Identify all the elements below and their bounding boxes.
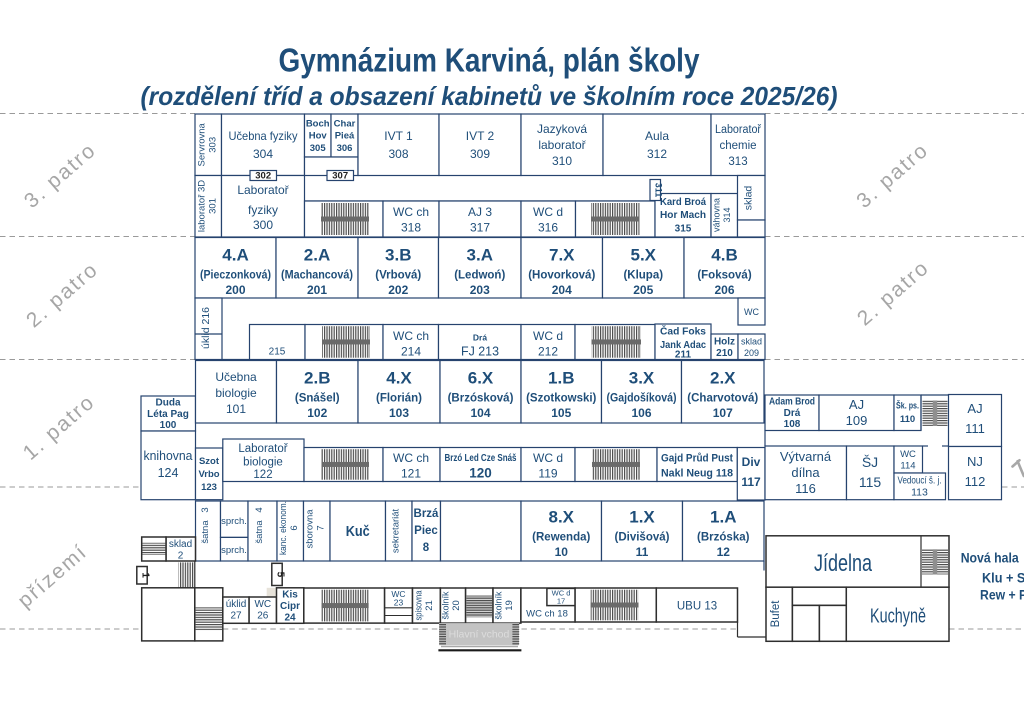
svg-text:WC ch: WC ch [393,451,429,465]
svg-text:chemie: chemie [719,140,756,152]
svg-text:103: 103 [389,406,409,420]
svg-text:Pieá: Pieá [335,131,355,142]
svg-text:sprch.: sprch. [221,516,247,527]
svg-text:2.B: 2.B [304,369,330,388]
svg-text:310: 310 [552,154,572,168]
svg-text:váhovna: váhovna [712,198,722,232]
svg-text:Vedoucí š. j.: Vedoucí š. j. [898,475,942,487]
svg-text:Hlavní vchod: Hlavní vchod [449,629,510,641]
svg-text:308: 308 [388,147,408,161]
svg-text:sklad: sklad [169,539,192,550]
svg-text:(Hovorková): (Hovorková) [528,270,595,282]
svg-text:Hov: Hov [309,131,328,142]
svg-text:113: 113 [911,487,928,499]
svg-text:209: 209 [744,348,759,358]
svg-text:IVT 1: IVT 1 [384,129,413,143]
svg-text:(Vrbová): (Vrbová) [375,270,421,282]
svg-text:WC d: WC d [533,329,563,343]
svg-text:2.A: 2.A [304,246,330,265]
svg-text:201: 201 [307,283,327,297]
svg-text:307: 307 [332,171,348,182]
svg-text:100: 100 [160,420,177,431]
svg-text:Szot: Szot [199,456,220,467]
svg-text:(Florián): (Florián) [376,393,422,405]
svg-text:313: 313 [728,156,747,168]
svg-text:(Pieczonková): (Pieczonková) [200,270,271,282]
svg-text:4.X: 4.X [386,369,412,388]
svg-text:123: 123 [201,482,217,493]
svg-text:212: 212 [538,345,558,359]
svg-text:17: 17 [557,597,565,606]
svg-text:Jídelna: Jídelna [814,550,872,577]
svg-text:301: 301 [208,198,219,214]
svg-text:316: 316 [538,221,558,235]
svg-text:Gajd Průd Pust: Gajd Průd Pust [661,453,733,465]
svg-text:Učebna fyziky: Učebna fyziky [229,129,298,143]
svg-text:200: 200 [225,283,245,297]
svg-text:AJ: AJ [849,397,864,412]
svg-text:UBU 13: UBU 13 [677,601,717,613]
svg-text:NJ: NJ [967,454,983,469]
svg-text:sborovna: sborovna [305,509,316,549]
svg-text:111: 111 [965,421,985,436]
svg-text:114: 114 [900,461,915,472]
svg-text:104: 104 [470,406,490,420]
svg-text:4.B: 4.B [711,246,737,265]
svg-text:204: 204 [552,283,572,297]
svg-text:Drá: Drá [473,333,487,343]
svg-text:Laboratoř: Laboratoř [238,443,288,455]
svg-text:školník: školník [494,591,505,619]
svg-text:3.X: 3.X [629,369,655,388]
svg-text:Nová hala: Nová hala [961,550,1019,566]
svg-text:Kuchyně: Kuchyně [870,606,926,628]
svg-text:biologie: biologie [215,386,257,400]
svg-text:(Brzósková): (Brzósková) [448,393,514,405]
svg-text:2: 2 [178,551,184,562]
svg-text:Adam Brod: Adam Brod [769,397,815,408]
svg-text:116: 116 [795,481,816,496]
svg-text:3.B: 3.B [385,246,411,265]
svg-text:Brzó Led Cze Snáš: Brzó Led Cze Snáš [445,453,517,464]
svg-text:Laboratoř: Laboratoř [715,124,762,136]
svg-text:8.X: 8.X [548,508,574,527]
svg-text:12: 12 [717,545,731,559]
svg-text:Duda: Duda [156,398,181,409]
svg-text:6.X: 6.X [468,369,494,388]
svg-text:Aula: Aula [645,129,669,143]
svg-text:303: 303 [208,137,219,153]
svg-text:FJ 213: FJ 213 [461,345,499,359]
svg-text:302: 302 [255,171,271,182]
svg-text:fyziky: fyziky [248,203,278,217]
svg-text:sekretariát: sekretariát [391,508,402,553]
svg-text:4.A: 4.A [222,246,248,265]
svg-text:202: 202 [388,283,408,297]
svg-text:23: 23 [394,598,404,608]
svg-text:laboratoř 3D: laboratoř 3D [197,180,208,232]
svg-text:Cipr: Cipr [280,601,300,612]
svg-text:Rew + Pe: Rew + Pe [980,587,1024,603]
svg-text:309: 309 [470,147,490,161]
svg-text:AJ: AJ [967,401,982,416]
svg-text:19: 19 [504,600,515,611]
svg-text:Hor Mach: Hor Mach [660,210,706,221]
svg-text:215: 215 [269,347,286,358]
svg-text:112: 112 [965,474,986,489]
svg-text:106: 106 [631,406,651,420]
svg-text:102: 102 [307,406,327,420]
svg-text:20: 20 [451,600,462,611]
svg-text:8: 8 [423,542,430,554]
svg-text:Jazyková: Jazyková [537,122,587,136]
svg-text:školník: školník [441,591,452,619]
svg-text:24: 24 [284,613,296,624]
svg-text:21: 21 [424,600,435,611]
svg-text:117: 117 [741,475,761,489]
svg-text:Bufet: Bufet [770,600,782,628]
svg-text:6: 6 [289,525,300,530]
svg-text:122: 122 [253,469,272,481]
svg-text:(Machancová): (Machancová) [281,270,353,282]
svg-text:121: 121 [401,467,421,481]
svg-text:(Rewenda): (Rewenda) [532,532,590,544]
svg-text:1.A: 1.A [710,508,736,527]
svg-text:105: 105 [551,406,571,420]
svg-text:spisovna: spisovna [414,590,425,621]
svg-text:(Brzóska): (Brzóska) [697,532,750,544]
svg-text:(Szotkowski): (Szotkowski) [526,393,596,405]
svg-text:WC ch 18: WC ch 18 [526,609,568,620]
svg-text:WC: WC [744,307,759,317]
svg-text:Nakl Neug 118: Nakl Neug 118 [661,468,733,480]
svg-text:318: 318 [401,221,421,235]
svg-text:Laboratoř: Laboratoř [237,183,289,197]
svg-text:124: 124 [158,466,179,480]
svg-text:WC: WC [900,449,916,460]
svg-text:304: 304 [253,147,273,161]
svg-text:300: 300 [253,218,273,232]
svg-text:26: 26 [257,611,269,622]
svg-text:WC: WC [254,599,271,610]
svg-text:laboratoř: laboratoř [538,138,586,152]
svg-text:206: 206 [714,283,734,297]
svg-text:(Ledwoń): (Ledwoń) [454,270,505,282]
svg-text:107: 107 [713,406,733,420]
svg-text:1: 1 [139,572,150,578]
svg-text:IVT 2: IVT 2 [466,129,495,143]
svg-text:120: 120 [469,466,492,481]
svg-text:WC d: WC d [533,451,563,465]
svg-text:dílna: dílna [791,465,820,480]
svg-text:203: 203 [470,283,490,297]
svg-text:Char: Char [334,119,356,130]
svg-text:(Snášel): (Snášel) [295,393,340,405]
svg-text:sklad: sklad [743,186,755,211]
svg-text:27: 27 [230,611,242,622]
svg-text:311: 311 [654,183,664,198]
svg-text:108: 108 [784,419,801,430]
svg-text:(Klupa): (Klupa) [623,270,663,282]
svg-text:úklid: úklid [226,599,247,610]
svg-text:Div: Div [742,455,761,469]
svg-text:Drá: Drá [784,408,801,419]
svg-text:šatna: šatna [200,520,211,544]
svg-text:Brzá: Brzá [414,508,440,520]
svg-text:(Divišová): (Divišová) [615,532,670,544]
svg-text:AJ 3: AJ 3 [468,205,492,219]
svg-text:Servrovna: Servrovna [197,122,208,166]
svg-text:Piec: Piec [414,525,438,537]
svg-text:WC d: WC d [533,205,563,219]
svg-text:WC ch: WC ch [393,329,429,343]
svg-text:7.X: 7.X [549,246,575,265]
svg-text:115: 115 [859,474,882,490]
svg-text:Kard Broá: Kard Broá [660,197,706,208]
svg-text:205: 205 [633,283,653,297]
svg-text:Vrbo: Vrbo [198,469,219,480]
svg-text:1.B: 1.B [548,369,574,388]
svg-text:Výtvarná: Výtvarná [780,449,832,464]
svg-text:ŠJ: ŠJ [862,454,878,470]
svg-text:sprch.: sprch. [221,545,247,556]
svg-text:7: 7 [316,525,327,530]
svg-text:Čad Foks: Čad Foks [660,325,706,338]
svg-text:4: 4 [254,507,265,512]
svg-text:11: 11 [636,545,649,559]
svg-text:Gymnázium Karviná, plán školy: Gymnázium Karviná, plán školy [279,42,701,79]
svg-text:knihovna: knihovna [144,449,193,463]
svg-text:(Gajdošíková): (Gajdošíková) [607,393,677,405]
svg-text:(Charvotová): (Charvotová) [687,393,758,405]
svg-text:306: 306 [337,143,353,154]
svg-text:Léta Pag: Léta Pag [147,409,189,420]
svg-text:úklid 216: úklid 216 [200,307,212,349]
svg-text:101: 101 [226,402,246,416]
svg-text:312: 312 [647,147,667,161]
svg-text:214: 214 [401,345,421,359]
svg-text:314: 314 [722,207,732,222]
svg-text:315: 315 [675,224,692,235]
svg-text:3.A: 3.A [467,246,493,265]
svg-text:Šk. ps.: Šk. ps. [896,400,919,412]
svg-text:šatna: šatna [254,520,265,544]
svg-text:5.X: 5.X [630,246,656,265]
svg-text:Kis: Kis [282,590,298,601]
svg-text:Holz: Holz [714,337,735,348]
svg-text:305: 305 [310,143,327,154]
svg-text:biologie: biologie [243,457,283,469]
svg-text:109: 109 [846,413,868,428]
svg-text:WC ch: WC ch [393,205,429,219]
svg-text:2.X: 2.X [710,369,736,388]
svg-text:Klu + Sie: Klu + Sie [982,570,1024,586]
svg-text:Boch: Boch [306,119,330,130]
svg-text:1.X: 1.X [629,508,655,527]
svg-text:(rozdělení tříd a obsazení kab: (rozdělení tříd a obsazení kabinetů ve š… [141,81,838,111]
svg-text:10: 10 [555,545,569,559]
svg-text:211: 211 [675,350,692,361]
svg-text:119: 119 [538,467,557,481]
svg-text:5: 5 [274,572,285,578]
svg-text:3: 3 [200,507,211,512]
svg-text:317: 317 [470,221,490,235]
svg-text:sklad: sklad [741,337,762,347]
svg-text:(Foksová): (Foksová) [697,270,751,282]
svg-text:Kuč: Kuč [346,523,370,540]
svg-text:210: 210 [716,348,733,359]
svg-text:110: 110 [900,414,915,425]
svg-text:Učebna: Učebna [215,370,257,384]
svg-text:kanc. ekonom.: kanc. ekonom. [278,501,289,555]
